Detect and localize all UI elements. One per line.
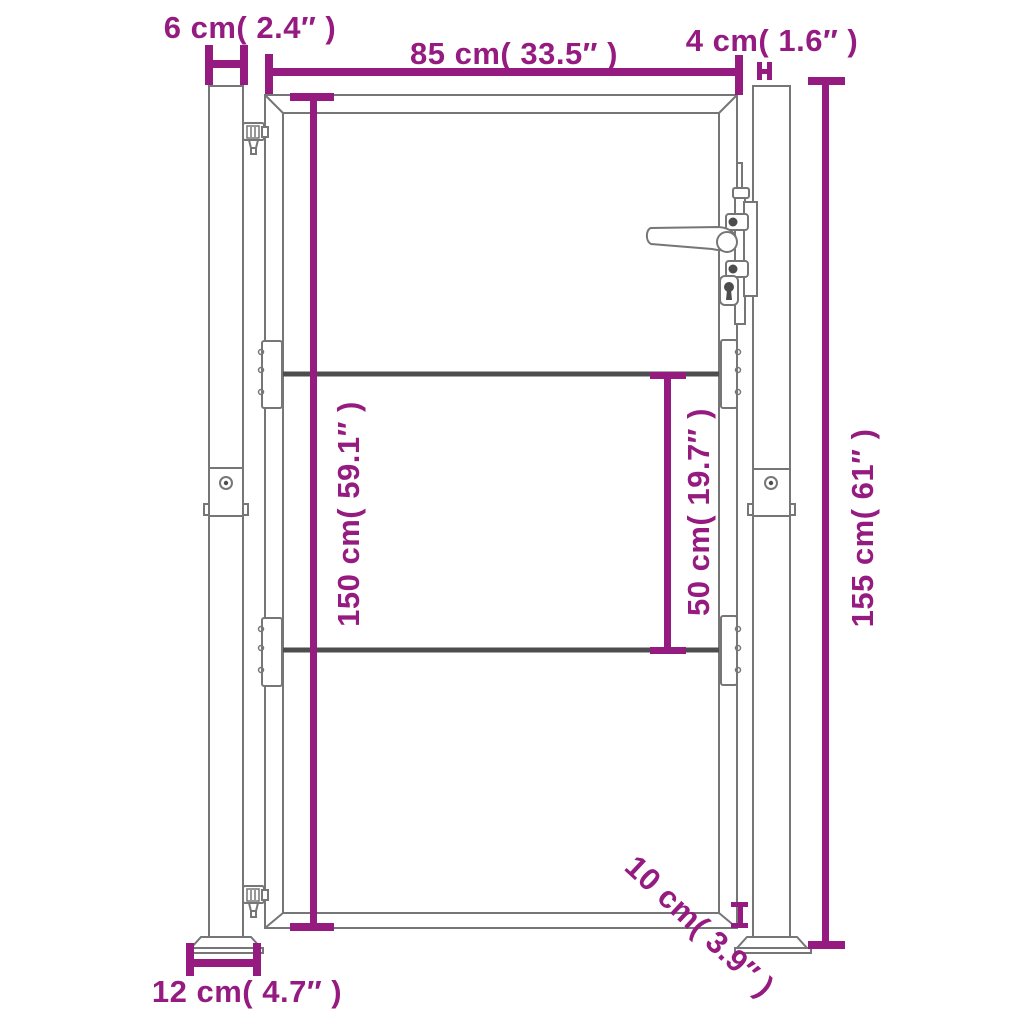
latch-clamp-top-bolt [729, 218, 738, 227]
gate-height-tick-bottom [290, 923, 334, 931]
rail-spacing-line [664, 372, 671, 654]
gate-height-line [310, 93, 317, 931]
right-post-bolt-nub-right [790, 504, 795, 515]
left-post-base-foot [189, 948, 263, 953]
diagram-canvas: 6 cm( 2.4″ ) 85 cm( 33.5″ ) 4 cm( 1.6″ )… [0, 0, 1024, 1024]
label-gate-height: 150 cm( 59.1″ ) [331, 401, 366, 627]
right-post-bolt-center [769, 481, 773, 485]
gate-width-tick-right [735, 55, 743, 95]
left-post-body [209, 86, 243, 937]
gap-width-bar [757, 69, 772, 74]
label-post-height: 155 cm( 61″ ) [845, 429, 880, 628]
label-post-width: 6 cm( 2.4″ ) [164, 10, 336, 45]
label-gap-width: 4 cm( 1.6″ ) [686, 23, 858, 58]
gate-dimension-diagram: 6 cm( 2.4″ ) 85 cm( 33.5″ ) 4 cm( 1.6″ )… [0, 0, 1024, 1024]
hinge-bottom-tab [262, 890, 268, 900]
label-rail-spacing: 50 cm( 19.7″ ) [681, 408, 716, 616]
latch-rod-cap [733, 188, 749, 198]
dimension-gap-width [757, 62, 772, 80]
junction-plate-left-top [262, 341, 282, 408]
right-post-bolt-nub-left [748, 504, 753, 515]
dimension-post-width [205, 45, 248, 85]
left-post-bolt-center [224, 481, 228, 485]
label-gate-width: 85 cm( 33.5″ ) [410, 36, 618, 71]
latch-rod-upper [737, 163, 742, 189]
hinge-bottom-nut [249, 903, 258, 911]
ground-clearance-tick-bottom [731, 923, 748, 928]
rail-spacing-tick-bottom [650, 647, 686, 654]
post-width-bar [205, 60, 248, 68]
post-height-line [822, 77, 829, 949]
right-post-body [753, 86, 790, 937]
hinge-top-nut [249, 140, 258, 148]
handle-boss [717, 232, 737, 252]
hinge-top-pin-tip [251, 148, 256, 154]
junction-plate-left-bottom [262, 618, 282, 686]
left-post-bolt-nub-right [243, 504, 248, 515]
left-post-base-plate [191, 937, 261, 948]
latch-clamp-bottom-bolt [729, 265, 738, 274]
junction-plate-right-bottom [721, 616, 737, 685]
dimension-post-height [808, 77, 845, 949]
post-height-tick-bottom [808, 941, 845, 949]
junction-plate-right-top [721, 340, 737, 408]
hinge-top-tab [262, 127, 268, 137]
base-width-bar [186, 959, 261, 967]
label-base-plate-width: 12 cm( 4.7″ ) [152, 974, 342, 1009]
left-post-bolt-nub-left [204, 504, 209, 515]
hinge-bottom-pin-tip [251, 911, 256, 917]
left-post [189, 86, 263, 953]
